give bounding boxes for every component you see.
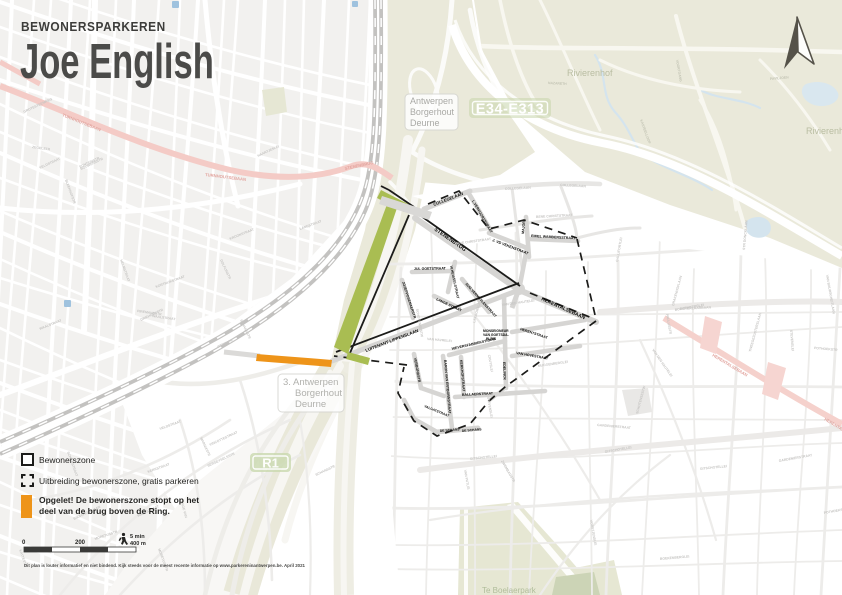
svg-text:EDELINCK: EDELINCK: [502, 362, 507, 381]
svg-text:Borgerhout: Borgerhout: [295, 388, 342, 399]
svg-text:Opgelet! De bewonerszone stopt: Opgelet! De bewonerszone stopt op het: [39, 495, 199, 505]
svg-text:Bewonerszone: Bewonerszone: [39, 455, 96, 465]
svg-text:Borgerhout: Borgerhout: [410, 107, 454, 117]
svg-text:Deurne: Deurne: [410, 118, 440, 128]
svg-text:Deurne: Deurne: [295, 399, 326, 410]
svg-text:R1: R1: [262, 456, 279, 471]
svg-text:Antwerpen: Antwerpen: [410, 96, 453, 106]
svg-text:JUL GOETSTRAAT: JUL GOETSTRAAT: [414, 266, 447, 271]
svg-text:Rivierenhof: Rivierenhof: [567, 68, 613, 78]
svg-text:Dit plan is louter informatief: Dit plan is louter informatief en niet b…: [24, 563, 306, 568]
svg-text:BEWONERSPARKEREN: BEWONERSPARKEREN: [21, 20, 166, 34]
svg-text:Joe English: Joe English: [20, 34, 214, 88]
svg-text:3. Antwerpen: 3. Antwerpen: [283, 377, 338, 388]
svg-text:E34-E313: E34-E313: [476, 102, 545, 118]
svg-text:400 m: 400 m: [130, 541, 146, 547]
svg-text:200: 200: [75, 540, 86, 546]
svg-text:Te Boelaerpark: Te Boelaerpark: [482, 586, 537, 595]
svg-text:deel van de brug boven de Ring: deel van de brug boven de Ring.: [39, 506, 170, 516]
svg-text:Rivierenhof: Rivierenhof: [806, 126, 842, 136]
svg-text:5 min: 5 min: [130, 534, 145, 540]
svg-text:Uitbreiding bewonerszone, grat: Uitbreiding bewonerszone, gratis parkere…: [39, 476, 199, 486]
